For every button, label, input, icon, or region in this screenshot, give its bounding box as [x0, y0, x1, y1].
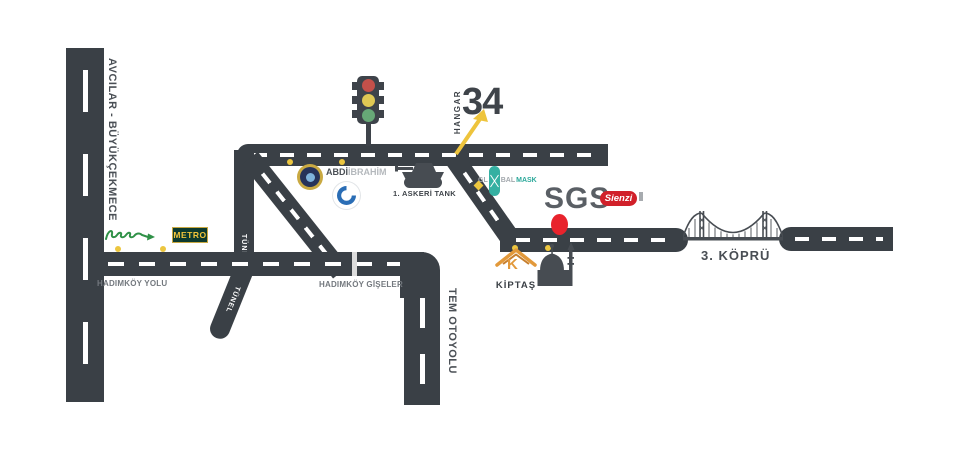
avcilar-label-text: AVCILAR - BÜYÜKÇEKMECE	[106, 58, 118, 221]
globalmask-bal: BAL	[501, 177, 515, 184]
kopru-label: 3. KÖPRÜ	[701, 248, 770, 263]
connector-dot	[339, 159, 345, 165]
avcilar-label: AVCILAR - BÜYÜKÇEKMECE	[106, 58, 118, 224]
location-marker-icon	[551, 214, 568, 235]
connector-dot	[287, 159, 293, 165]
road-hadimkoy-yolu	[98, 252, 424, 276]
ibrahim-text: İBRAHİM	[348, 167, 387, 177]
metro-text: METRO	[173, 230, 206, 240]
directions-map: TÜNEL TÜNEL AVCILAR - BÜYÜKÇEKMECE HADIM…	[0, 0, 956, 462]
hangar-arrow-icon	[448, 106, 492, 158]
badge-logo-icon	[297, 164, 323, 190]
tank-icon	[395, 158, 451, 190]
bridge-icon	[683, 206, 783, 250]
road-dashes	[108, 262, 408, 266]
road-dashes	[795, 237, 883, 241]
connector-dot	[160, 246, 166, 252]
road-dashes	[253, 153, 600, 157]
globalmask-logo: GL BAL MASK	[478, 165, 537, 196]
hadimkoy-giseler-label: HADIMKÖY GİŞELER	[319, 280, 403, 289]
toll-gate-marker	[352, 252, 357, 276]
yellow-light	[362, 94, 375, 107]
kiptas-k: K	[507, 256, 518, 273]
road-avcilar	[66, 48, 104, 402]
traffic-light-icon	[352, 74, 384, 148]
metro-logo: METRO	[172, 227, 208, 243]
connector-dot	[115, 246, 121, 252]
abdi-text: ABDİ	[326, 167, 348, 177]
road-tem	[404, 280, 440, 405]
blue-emblem-icon	[333, 182, 360, 209]
sienzi-tm-mark	[639, 192, 643, 201]
road-after-bridge	[779, 227, 893, 251]
green-light	[362, 109, 375, 122]
askeri-tank-label: 1. ASKERİ TANK	[393, 189, 456, 198]
road-dashes	[420, 298, 425, 395]
abdi-ibrahim-logo: ABDİİBRAHİM	[326, 167, 387, 177]
globe-icon	[489, 166, 500, 196]
traffic-light-pole	[366, 124, 371, 146]
sienzi-logo: Sienzi	[600, 191, 637, 206]
road-dashes	[83, 70, 88, 388]
red-light	[362, 79, 375, 92]
tunel-label: TÜNEL	[224, 285, 241, 314]
tem-otoyolu-label-text: TEM OTOYOLU	[446, 288, 458, 374]
kiptas-label: KİPTAŞ	[494, 280, 538, 291]
hadimkoy-yolu-label: HADIMKÖY YOLU	[97, 279, 167, 288]
mosque-icon	[536, 240, 578, 292]
green-script-logo-icon	[104, 226, 156, 244]
globalmask-mask: MASK	[516, 177, 537, 184]
tem-otoyolu-label: TEM OTOYOLU	[446, 288, 458, 377]
road-dashes	[261, 172, 334, 262]
sienzi-text: Sienzi	[605, 193, 632, 204]
